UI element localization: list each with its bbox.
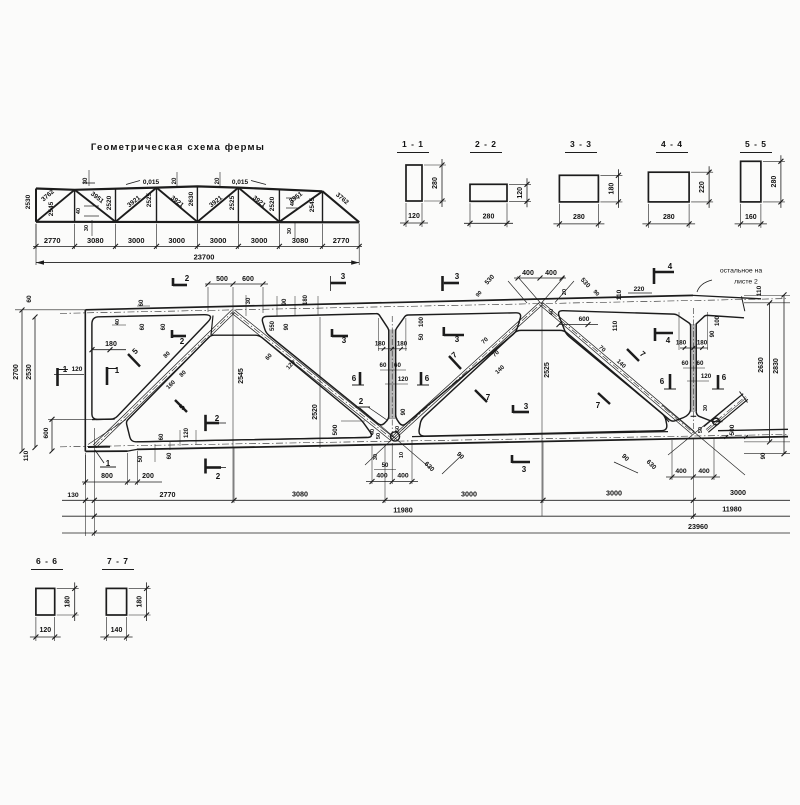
svg-text:500: 500 [332, 424, 339, 435]
svg-text:160: 160 [745, 214, 757, 221]
svg-text:180: 180 [375, 341, 386, 348]
svg-text:60: 60 [380, 362, 387, 369]
svg-text:90: 90 [710, 330, 716, 337]
svg-text:400: 400 [522, 270, 534, 277]
svg-text:50: 50 [419, 333, 425, 340]
svg-text:220: 220 [634, 286, 645, 293]
svg-text:120: 120 [701, 373, 712, 380]
svg-text:2530: 2530 [26, 364, 33, 380]
svg-text:400: 400 [545, 270, 557, 277]
svg-text:50: 50 [698, 427, 704, 433]
svg-text:2630: 2630 [758, 357, 765, 373]
svg-text:2: 2 [180, 337, 185, 346]
svg-text:110: 110 [23, 450, 30, 461]
svg-text:3: 3 [342, 336, 347, 345]
svg-text:1: 1 [63, 365, 68, 374]
svg-text:110: 110 [756, 285, 763, 296]
svg-text:2520: 2520 [312, 404, 319, 420]
svg-text:2: 2 [359, 397, 364, 406]
svg-text:2520: 2520 [106, 195, 113, 210]
svg-text:110: 110 [616, 289, 623, 300]
svg-text:6: 6 [425, 374, 430, 383]
svg-text:2700: 2700 [13, 364, 20, 380]
svg-text:30: 30 [287, 228, 293, 234]
svg-text:60: 60 [161, 323, 167, 330]
svg-text:10: 10 [399, 452, 405, 458]
svg-text:90: 90 [282, 298, 288, 305]
svg-text:2530: 2530 [25, 194, 32, 209]
svg-text:100: 100 [715, 315, 721, 326]
svg-text:60: 60 [26, 295, 33, 303]
svg-text:400: 400 [675, 468, 687, 475]
svg-text:180: 180 [137, 596, 144, 608]
svg-text:2545: 2545 [238, 368, 245, 384]
svg-text:40: 40 [76, 208, 82, 214]
svg-text:3: 3 [341, 272, 346, 281]
svg-text:2525: 2525 [146, 192, 153, 207]
svg-text:180: 180 [303, 294, 309, 305]
svg-text:2545: 2545 [309, 197, 316, 212]
svg-text:180: 180 [697, 340, 708, 347]
svg-text:50: 50 [138, 455, 144, 462]
svg-text:60: 60 [159, 433, 165, 440]
svg-text:7: 7 [596, 401, 601, 410]
svg-text:0,015: 0,015 [143, 179, 160, 186]
svg-text:3: 3 [455, 272, 460, 281]
svg-text:130: 130 [67, 492, 79, 499]
svg-text:60: 60 [394, 362, 401, 369]
svg-text:50: 50 [382, 463, 389, 469]
svg-text:3000: 3000 [730, 488, 746, 497]
svg-text:3000: 3000 [461, 490, 477, 499]
svg-text:60: 60 [140, 323, 146, 330]
svg-text:2 - 2: 2 - 2 [475, 139, 497, 149]
svg-text:90: 90 [284, 323, 290, 330]
svg-text:40: 40 [290, 200, 296, 206]
svg-text:180: 180 [105, 341, 117, 348]
svg-text:3: 3 [524, 402, 529, 411]
svg-text:60: 60 [697, 360, 704, 367]
svg-text:4 - 4: 4 - 4 [661, 139, 683, 149]
svg-text:30: 30 [703, 405, 709, 411]
svg-text:60: 60 [682, 360, 689, 367]
svg-text:30: 30 [246, 297, 252, 304]
svg-text:500: 500 [729, 424, 736, 435]
svg-text:2545: 2545 [48, 201, 55, 216]
svg-text:2520: 2520 [269, 196, 276, 211]
svg-text:7: 7 [486, 393, 491, 402]
svg-text:50: 50 [395, 426, 401, 432]
svg-text:40: 40 [115, 319, 121, 325]
svg-text:180: 180 [676, 340, 687, 347]
svg-text:6: 6 [660, 377, 665, 386]
svg-text:200: 200 [142, 473, 154, 480]
svg-text:400: 400 [376, 473, 388, 480]
svg-text:100: 100 [419, 316, 425, 327]
svg-text:2: 2 [185, 274, 190, 283]
svg-text:2525: 2525 [229, 195, 236, 210]
svg-text:50: 50 [376, 433, 382, 439]
svg-text:120: 120 [184, 427, 190, 438]
svg-text:120: 120 [408, 213, 420, 220]
svg-text:30: 30 [84, 225, 90, 231]
svg-text:3080: 3080 [292, 236, 309, 245]
svg-text:6: 6 [722, 373, 727, 382]
svg-text:0,015: 0,015 [232, 179, 249, 186]
svg-text:550: 550 [270, 320, 276, 331]
svg-text:600: 600 [43, 427, 50, 438]
svg-text:140: 140 [111, 627, 123, 634]
svg-text:1: 1 [115, 366, 120, 375]
svg-text:11980: 11980 [393, 506, 413, 515]
svg-text:280: 280 [483, 213, 495, 220]
svg-text:60: 60 [167, 452, 173, 459]
svg-text:2770: 2770 [44, 236, 61, 245]
svg-text:280: 280 [663, 214, 675, 221]
svg-text:3000: 3000 [251, 236, 268, 245]
svg-text:3080: 3080 [292, 490, 308, 499]
svg-text:6 - 6: 6 - 6 [36, 556, 58, 566]
svg-text:110: 110 [612, 320, 619, 331]
svg-text:4: 4 [666, 336, 671, 345]
svg-text:2: 2 [216, 472, 221, 481]
svg-text:3000: 3000 [210, 236, 227, 245]
svg-text:2830: 2830 [773, 358, 780, 374]
svg-text:7 - 7: 7 - 7 [107, 556, 129, 566]
svg-text:400: 400 [698, 468, 710, 475]
svg-text:220: 220 [699, 181, 706, 193]
svg-text:4: 4 [668, 262, 673, 271]
svg-text:60: 60 [139, 299, 145, 306]
svg-text:90: 90 [761, 452, 767, 459]
svg-text:3 - 3: 3 - 3 [570, 139, 592, 149]
svg-text:280: 280 [432, 177, 439, 189]
svg-text:20: 20 [562, 289, 568, 295]
svg-text:600: 600 [579, 316, 590, 323]
svg-text:6: 6 [352, 374, 357, 383]
svg-text:23960: 23960 [688, 522, 708, 531]
svg-text:2: 2 [215, 414, 220, 423]
svg-text:120: 120 [72, 366, 83, 373]
svg-text:остальное на: остальное на [720, 268, 762, 275]
svg-text:400: 400 [397, 473, 409, 480]
svg-text:500: 500 [216, 276, 228, 283]
svg-text:120: 120 [398, 376, 409, 383]
svg-text:800: 800 [101, 473, 113, 480]
svg-text:90: 90 [401, 408, 407, 415]
svg-text:1 - 1: 1 - 1 [402, 139, 424, 149]
svg-text:3000: 3000 [128, 236, 145, 245]
svg-text:30: 30 [373, 454, 379, 460]
svg-text:40: 40 [549, 309, 555, 315]
svg-text:120: 120 [517, 187, 524, 199]
svg-text:11980: 11980 [722, 505, 742, 514]
svg-text:280: 280 [573, 214, 585, 221]
svg-text:180: 180 [65, 596, 72, 608]
svg-text:3: 3 [455, 335, 460, 344]
svg-text:2525: 2525 [544, 362, 551, 378]
svg-text:2630: 2630 [188, 191, 195, 206]
svg-text:3080: 3080 [87, 236, 104, 245]
svg-text:листе 2: листе 2 [734, 279, 758, 286]
svg-text:Геометрическая схема фермы: Геометрическая схема фермы [91, 142, 265, 153]
svg-text:5 - 5: 5 - 5 [745, 139, 767, 149]
svg-text:180: 180 [608, 183, 615, 195]
svg-text:120: 120 [39, 627, 51, 634]
svg-text:3000: 3000 [606, 489, 622, 498]
svg-text:3: 3 [522, 465, 527, 474]
svg-text:23700: 23700 [194, 253, 215, 262]
svg-text:2770: 2770 [160, 490, 176, 499]
svg-text:3000: 3000 [168, 236, 185, 245]
svg-text:280: 280 [771, 176, 778, 188]
svg-text:600: 600 [242, 276, 254, 283]
svg-text:2770: 2770 [333, 236, 350, 245]
